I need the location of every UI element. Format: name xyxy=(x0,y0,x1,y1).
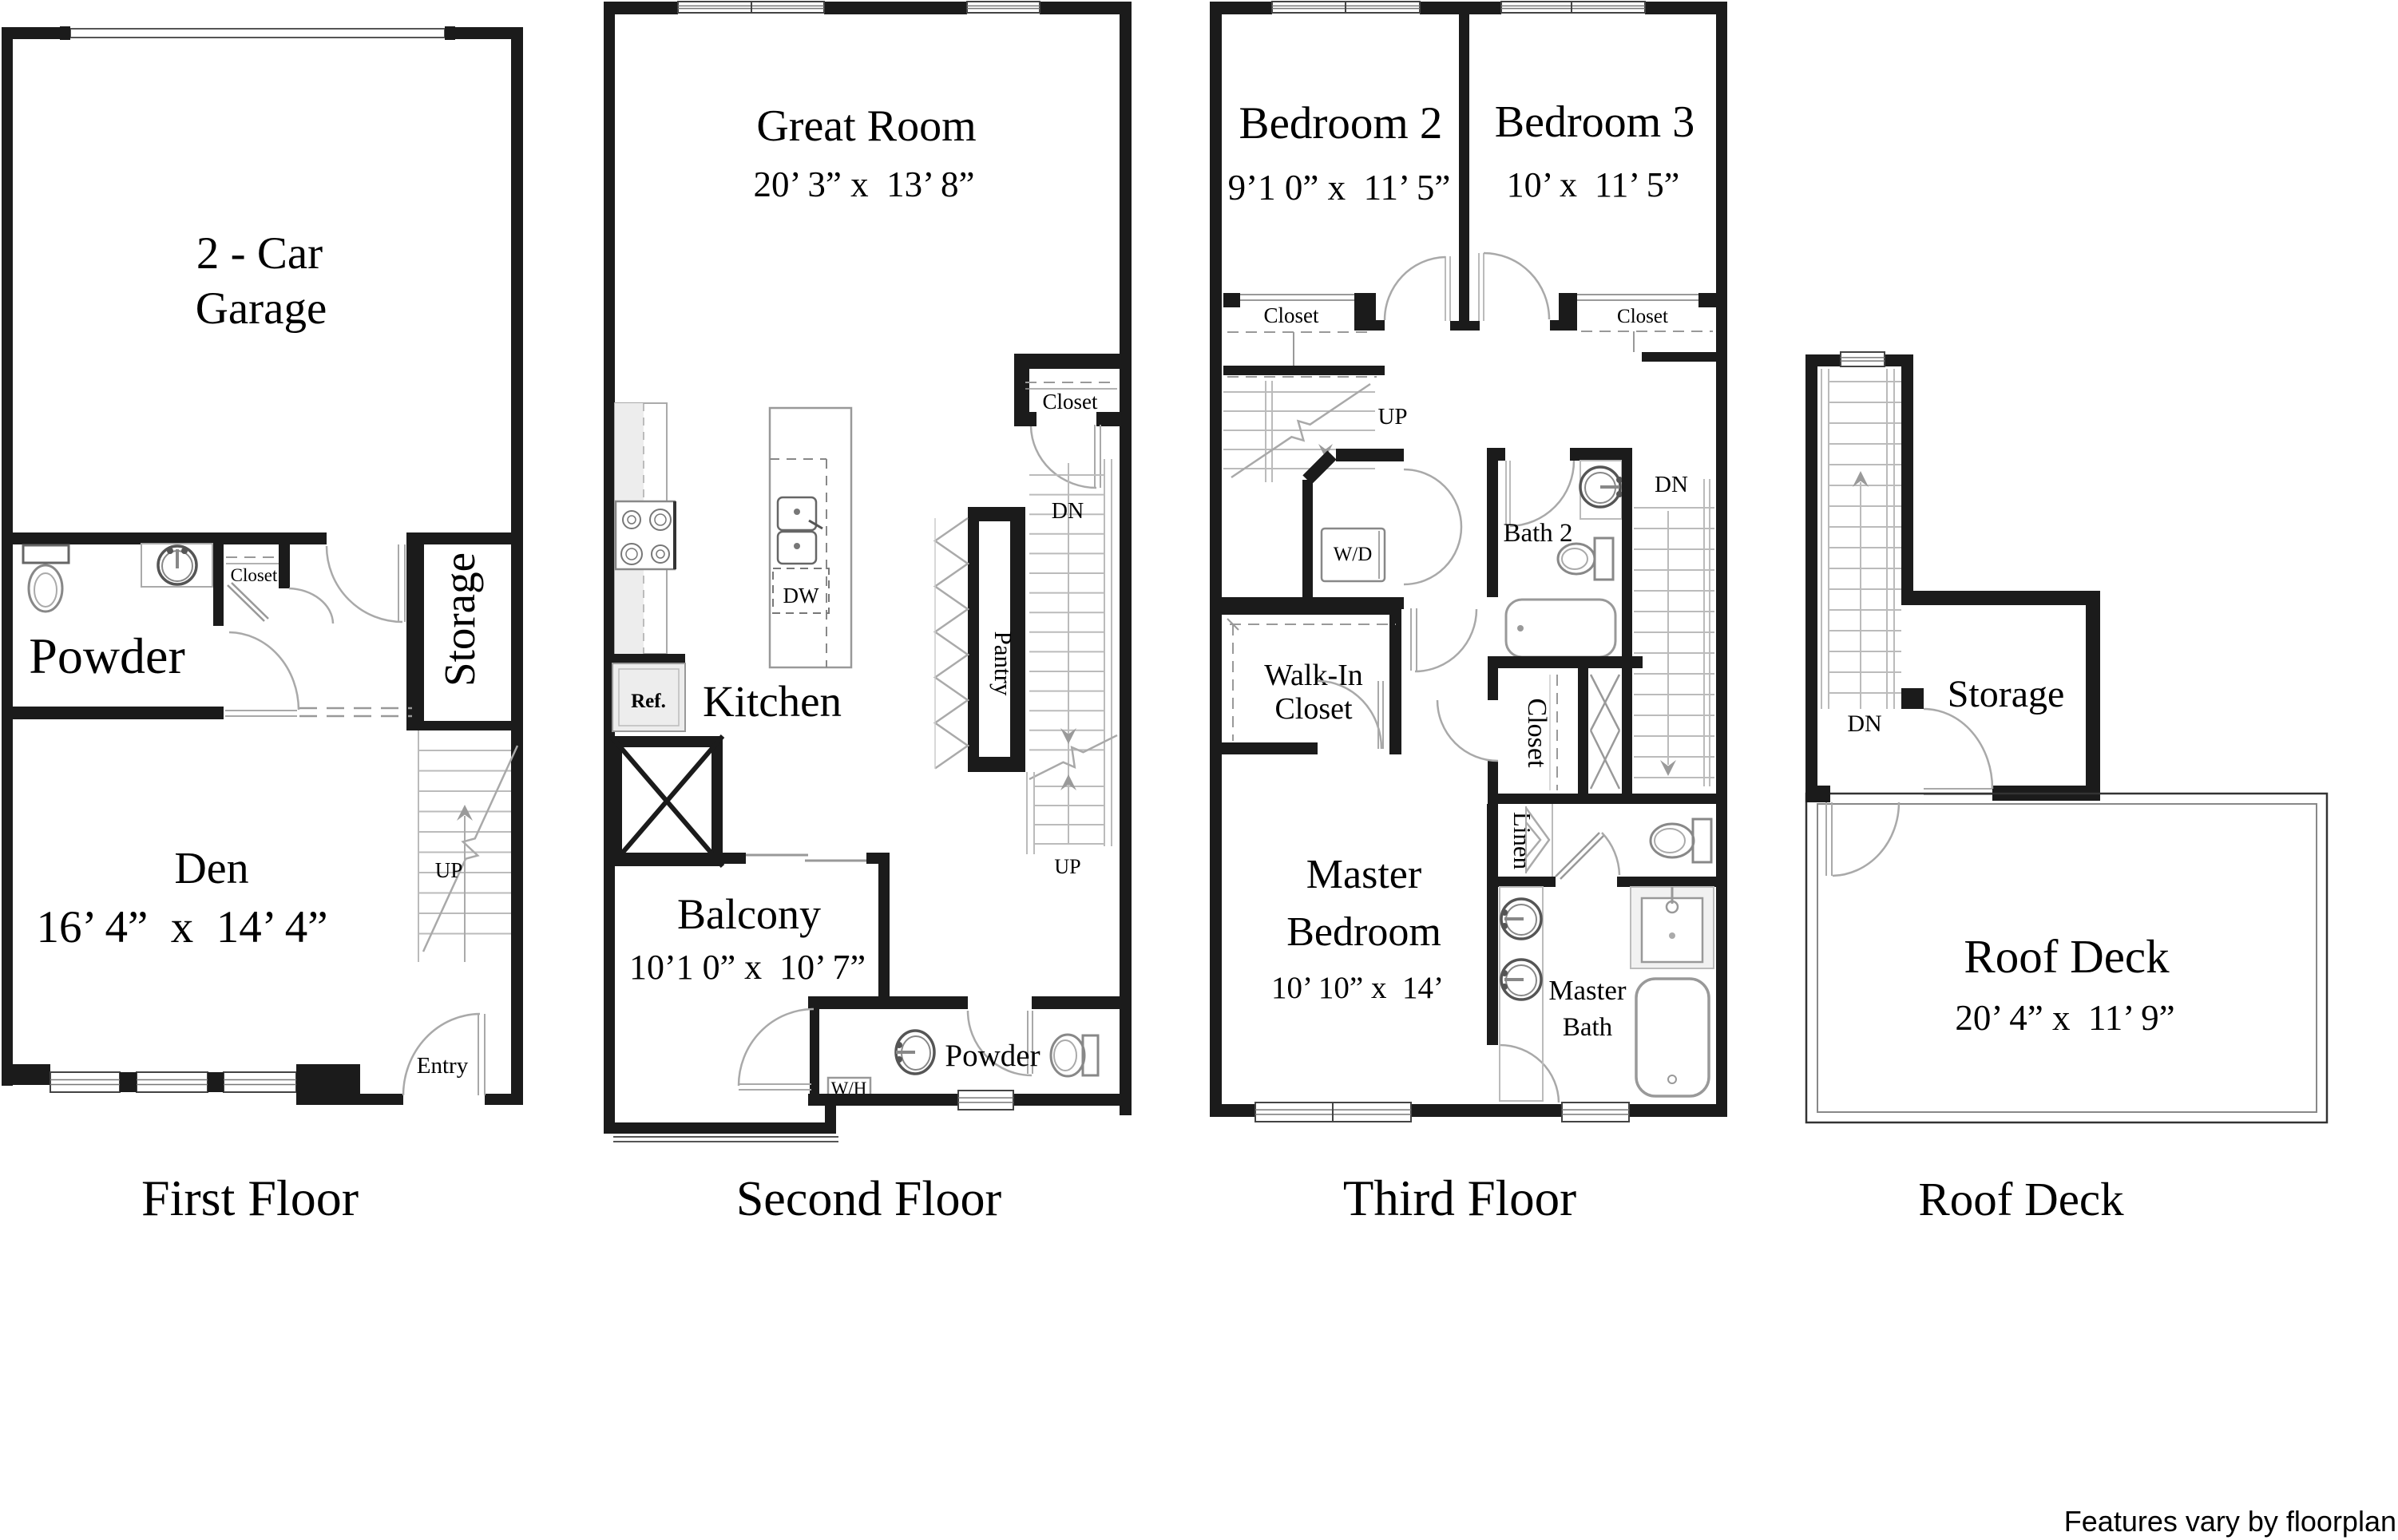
svg-text:Master: Master xyxy=(1548,975,1627,1006)
svg-text:2 - Car: 2 - Car xyxy=(196,228,323,279)
svg-text:Powder: Powder xyxy=(29,627,185,684)
svg-text:Second Floor: Second Floor xyxy=(736,1172,1002,1226)
svg-text:Bedroom: Bedroom xyxy=(1286,909,1441,955)
svg-text:Ref.: Ref. xyxy=(631,691,666,712)
svg-text:Storage: Storage xyxy=(435,552,484,687)
svg-text:Walk-In: Walk-In xyxy=(1264,659,1363,692)
svg-text:Great Room: Great Room xyxy=(756,101,976,151)
svg-text:Closet: Closet xyxy=(231,565,278,585)
svg-text:Bath 2: Bath 2 xyxy=(1503,519,1572,548)
svg-text:Closet: Closet xyxy=(1042,390,1098,414)
svg-text:Powder: Powder xyxy=(945,1039,1040,1073)
svg-text:Features vary by floorplan: Features vary by floorplan xyxy=(2064,1505,2396,1538)
svg-text:First Floor: First Floor xyxy=(141,1170,359,1226)
svg-text:W/D: W/D xyxy=(1334,544,1373,565)
svg-text:Closet: Closet xyxy=(1617,306,1668,327)
svg-text:UP: UP xyxy=(1054,855,1080,878)
svg-text:Balcony: Balcony xyxy=(677,890,821,938)
svg-text:Roof Deck: Roof Deck xyxy=(1964,930,2170,983)
svg-text:Garage: Garage xyxy=(196,283,327,334)
svg-text:Bath: Bath xyxy=(1563,1013,1613,1042)
svg-text:10’ 10” x 14’: 10’ 10” x 14’ xyxy=(1271,971,1444,1005)
svg-text:Linen: Linen xyxy=(1508,812,1536,870)
svg-text:DN: DN xyxy=(1052,499,1084,524)
svg-text:Bedroom 2: Bedroom 2 xyxy=(1239,98,1443,148)
svg-text:Bedroom 3: Bedroom 3 xyxy=(1495,97,1694,147)
svg-text:20’ 4” x 11’ 9”: 20’ 4” x 11’ 9” xyxy=(1955,998,2174,1038)
svg-text:Roof Deck: Roof Deck xyxy=(1918,1173,2124,1225)
svg-text:Closet: Closet xyxy=(1522,699,1552,768)
svg-text:UP: UP xyxy=(435,858,463,882)
svg-text:10’1 0” x 10’ 7”: 10’1 0” x 10’ 7” xyxy=(629,948,866,987)
svg-text:20’ 3” x 13’ 8”: 20’ 3” x 13’ 8” xyxy=(754,164,975,204)
svg-text:Storage: Storage xyxy=(1948,673,2065,715)
svg-text:Closet: Closet xyxy=(1263,303,1319,327)
svg-text:9’1 0” x 11’ 5”: 9’1 0” x 11’ 5” xyxy=(1228,168,1451,208)
svg-text:DN: DN xyxy=(1655,472,1688,497)
svg-text:Closet: Closet xyxy=(1274,692,1353,726)
svg-text:10’ x 11’ 5”: 10’ x 11’ 5” xyxy=(1507,165,1680,204)
svg-text:Third Floor: Third Floor xyxy=(1343,1170,1576,1226)
svg-text:Master: Master xyxy=(1306,852,1421,897)
svg-text:Den: Den xyxy=(174,844,248,893)
svg-text:16’ 4” x 14’ 4”: 16’ 4” x 14’ 4” xyxy=(36,902,327,952)
svg-text:Entry: Entry xyxy=(417,1053,469,1079)
svg-text:UP: UP xyxy=(1377,404,1407,430)
svg-text:Pantry: Pantry xyxy=(989,631,1017,696)
svg-text:Kitchen: Kitchen xyxy=(703,677,842,726)
svg-text:DN: DN xyxy=(1847,711,1881,737)
svg-text:DW: DW xyxy=(783,584,819,608)
